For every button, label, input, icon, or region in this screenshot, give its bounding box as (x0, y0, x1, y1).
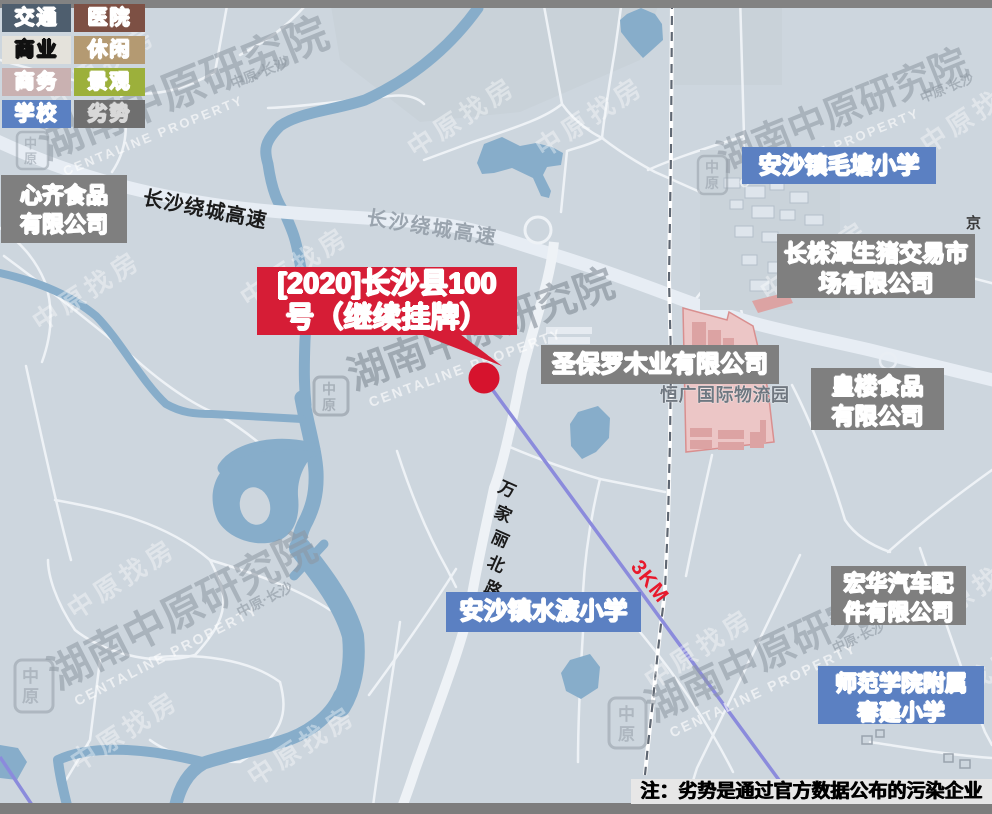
svg-text:中: 中 (22, 666, 39, 686)
svg-text:中: 中 (322, 381, 336, 397)
svg-text:原: 原 (618, 725, 635, 744)
svg-text:恒广国际物流园: 恒广国际物流园 (660, 384, 790, 405)
svg-text:京: 京 (966, 214, 981, 232)
svg-text:原: 原 (322, 397, 336, 413)
svg-text:中: 中 (24, 136, 37, 151)
svg-text:原: 原 (22, 687, 39, 706)
svg-text:原: 原 (24, 151, 37, 166)
svg-text:中: 中 (618, 704, 635, 724)
svg-text:中: 中 (705, 159, 719, 175)
svg-text:原: 原 (705, 175, 719, 191)
